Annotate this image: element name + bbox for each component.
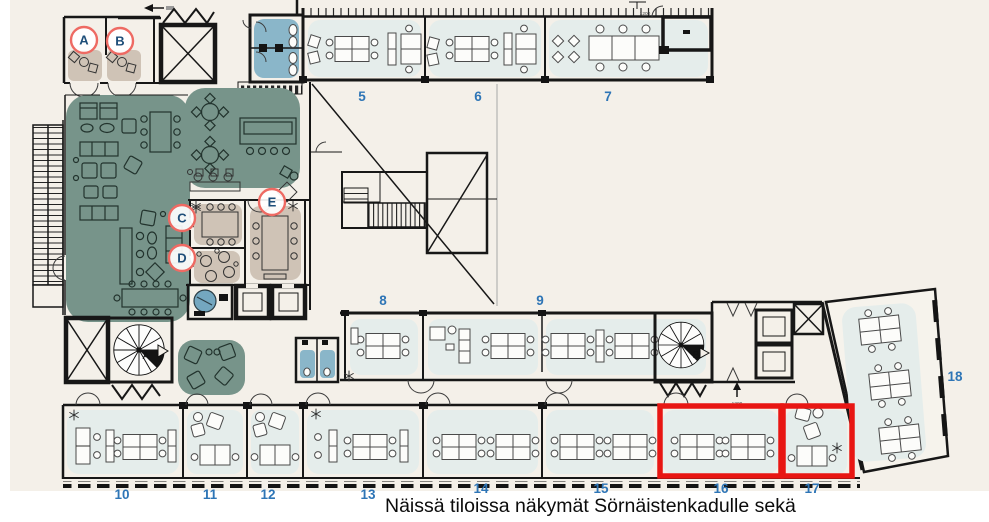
room-9-label: 9 [536, 293, 544, 308]
room-17-label: 17 [804, 481, 819, 496]
room-11 [187, 410, 243, 474]
floor-plan-svg: 1200 [0, 0, 989, 522]
marker-d: D [169, 245, 195, 271]
marker-a: A [71, 27, 97, 53]
room-13-label: 13 [360, 487, 376, 502]
room-16 [662, 410, 779, 474]
room-12-label: 12 [260, 487, 275, 502]
stair-a-label: A [142, 350, 149, 362]
caption-text: Näissä tiloissa näkymät Sörnäistenkadull… [385, 495, 796, 517]
room-6 [427, 20, 541, 77]
lounge-area [66, 95, 190, 322]
room-13 [307, 409, 419, 474]
meeting-room-d [190, 249, 240, 285]
room-17 [785, 406, 847, 474]
room-8-label: 8 [379, 293, 387, 308]
marker-b-label: B [115, 34, 124, 49]
room-11-label: 11 [203, 487, 218, 502]
room-10-label: 10 [114, 487, 129, 502]
room-12 [251, 410, 299, 474]
conference-table [589, 25, 659, 71]
room-15-label: 15 [593, 481, 609, 496]
marker-b: B [107, 28, 133, 54]
marker-d-label: D [177, 251, 186, 266]
room-10 [67, 410, 179, 474]
dim-label-top: 1200 [640, 11, 651, 17]
cafe-area [185, 88, 300, 188]
marker-a-label: A [79, 33, 89, 48]
marker-c: C [169, 205, 195, 231]
stair-b-label: B [692, 349, 699, 361]
room-16-label: 16 [713, 481, 729, 496]
marker-e: E [259, 189, 285, 215]
room-14-label: 14 [473, 481, 489, 496]
room-15 [546, 410, 656, 474]
room-5-label: 5 [358, 89, 366, 104]
room-14 [427, 410, 539, 474]
room-6-label: 6 [474, 89, 482, 104]
marker-c-label: C [177, 211, 187, 226]
seating-island [178, 340, 245, 395]
room-5 [308, 20, 421, 77]
marker-e-label: E [268, 195, 277, 210]
room-8 [350, 319, 418, 375]
floor-plan-image: 1200 [0, 0, 989, 522]
room-18-label: 18 [947, 369, 963, 384]
top-room-band: 1200 [299, 2, 714, 83]
room-7-label: 7 [604, 89, 612, 104]
staircase-left [33, 120, 63, 315]
